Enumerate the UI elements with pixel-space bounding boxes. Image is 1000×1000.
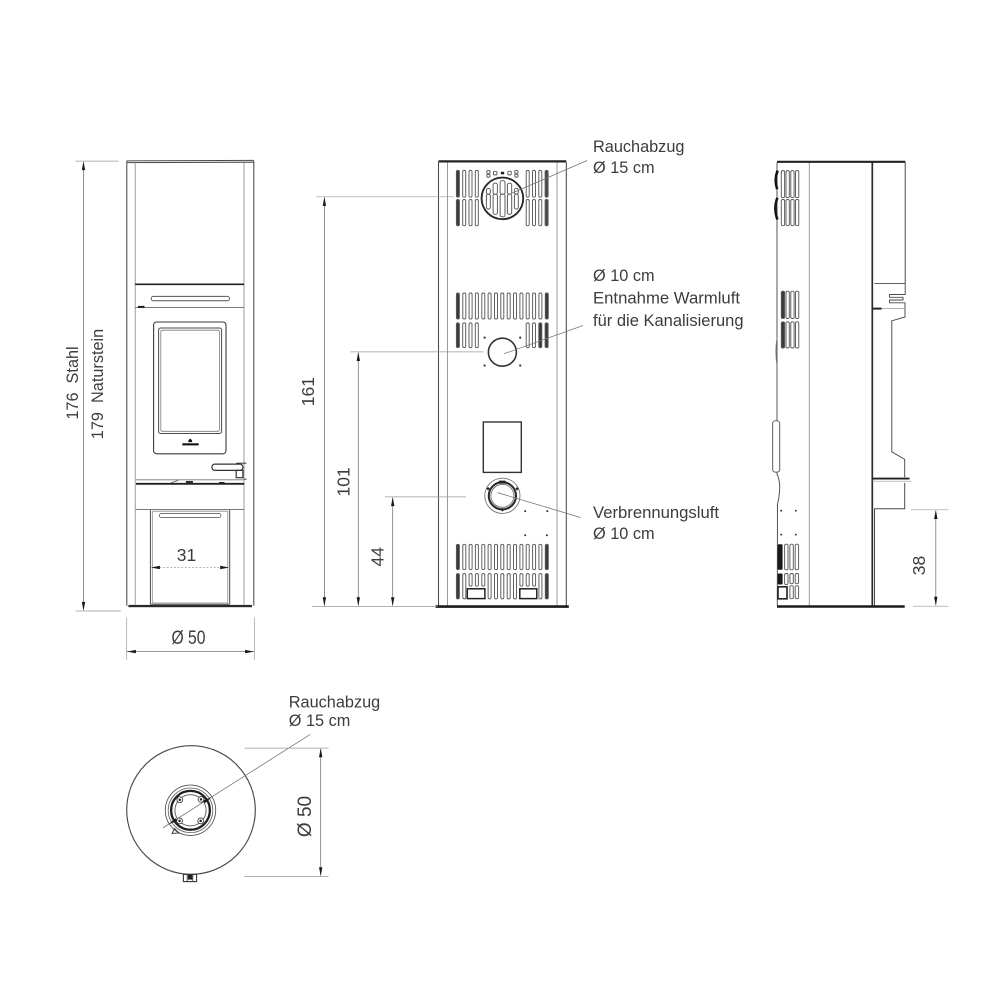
svg-text:Ø 10 cm: Ø 10 cm — [593, 525, 655, 543]
svg-text:für die Kanalisierung: für die Kanalisierung — [593, 312, 744, 330]
svg-text:Entnahme Warmluft: Entnahme Warmluft — [593, 290, 740, 308]
svg-text:179 Naturstein: 179 Naturstein — [89, 329, 107, 439]
svg-text:38: 38 — [909, 556, 929, 575]
svg-text:101: 101 — [334, 467, 354, 496]
svg-text:Ø 50: Ø 50 — [295, 796, 316, 837]
svg-text:31: 31 — [177, 545, 196, 565]
svg-text:Rauchabzug: Rauchabzug — [593, 138, 684, 156]
svg-text:161: 161 — [298, 377, 318, 406]
svg-text:Ø 15 cm: Ø 15 cm — [289, 712, 351, 730]
svg-text:Verbrennungsluft: Verbrennungsluft — [593, 504, 719, 522]
svg-text:Ø 10 cm: Ø 10 cm — [593, 267, 655, 285]
svg-text:Ø 15 cm: Ø 15 cm — [593, 159, 655, 177]
svg-text:44: 44 — [368, 547, 388, 567]
svg-text:Rauchabzug: Rauchabzug — [289, 693, 380, 711]
svg-text:176 Stahl: 176 Stahl — [64, 346, 82, 419]
svg-text:Ø 50: Ø 50 — [172, 628, 206, 649]
